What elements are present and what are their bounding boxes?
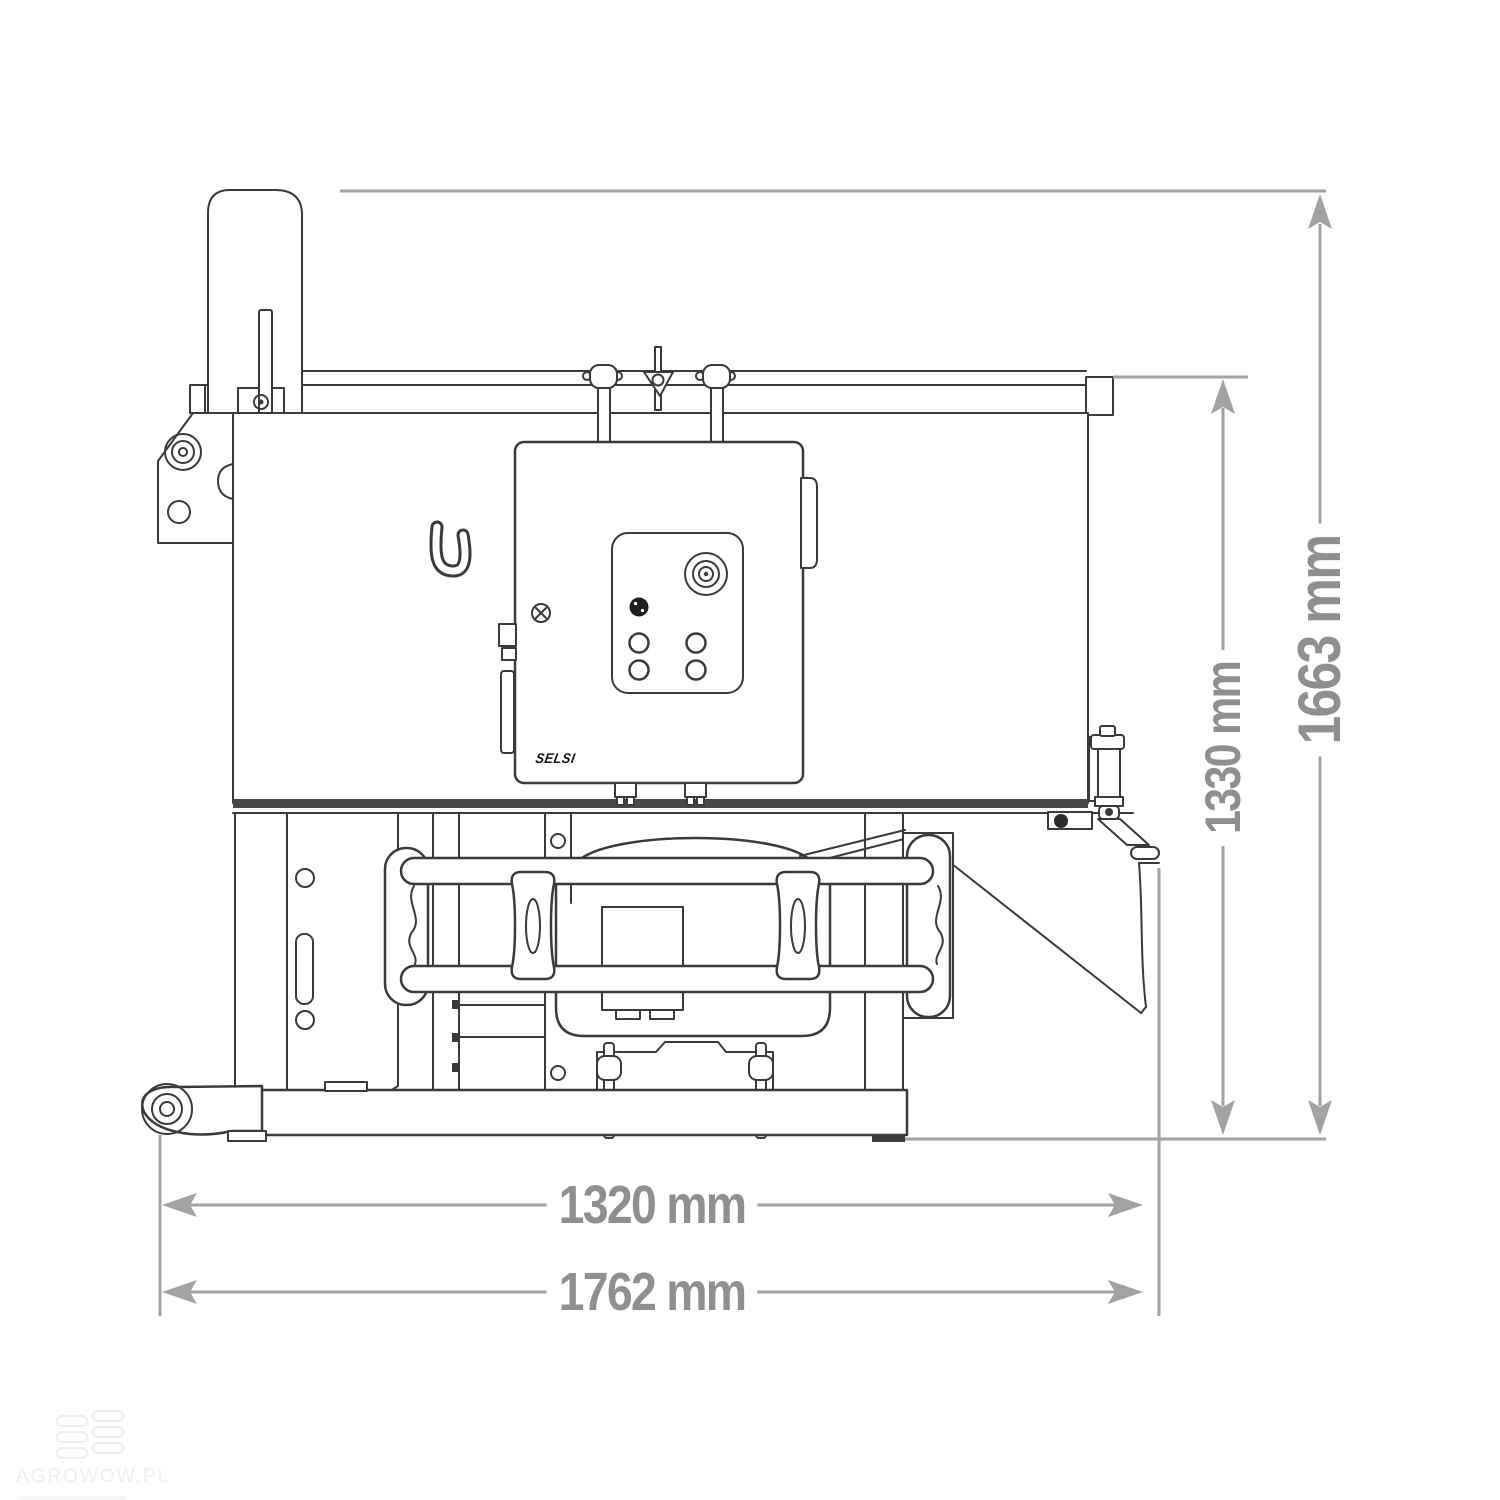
- mount-bracket: [158, 413, 233, 543]
- dimension-label-inner-width: 1320 mm: [547, 1176, 758, 1234]
- watermark-text: AGROWOW.PL: [16, 1466, 236, 1488]
- control-panel: [612, 533, 743, 693]
- bar-icon: [56, 1447, 88, 1459]
- bar-icon: [92, 1410, 124, 1422]
- watermark-bars-left: [56, 1415, 88, 1459]
- bar-icon: [56, 1431, 88, 1443]
- base-frame: [248, 1082, 907, 1142]
- dimension-label-inner-height: 1330 mm: [1196, 650, 1250, 846]
- watermark: AGROWOW.PL: [16, 1410, 236, 1500]
- watermark-bars-right: [92, 1410, 124, 1454]
- watermark-subline: [16, 1496, 126, 1500]
- emergency-button-icon: [630, 598, 649, 617]
- left-plate: [208, 190, 302, 437]
- dimension-label-overall-height: 1663 mm: [1288, 524, 1352, 757]
- arrow-up-icon: [1308, 194, 1332, 229]
- bar-icon: [56, 1415, 88, 1427]
- dimension-label-overall-width: 1762 mm: [547, 1263, 758, 1321]
- hitch-arm: [142, 1084, 266, 1141]
- watermark-logo-icon: [56, 1410, 236, 1454]
- bar-icon: [92, 1426, 124, 1438]
- brand-label: SELSI: [534, 750, 576, 766]
- bar-icon: [92, 1442, 124, 1454]
- discharge-chute: [952, 847, 1159, 1013]
- technical-drawing-page: 1320 mm 1762 mm 1330 mm 1663 mm SELSI AG…: [0, 0, 1500, 1500]
